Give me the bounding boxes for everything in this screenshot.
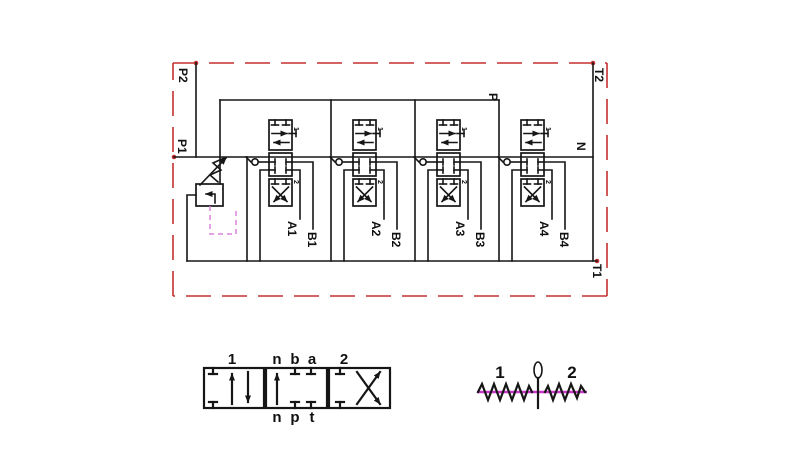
position-label-1: 1	[292, 127, 299, 131]
lever-label-1: 1	[495, 363, 504, 382]
port-label-a4: A4	[537, 221, 551, 237]
legend-label-port-n-top: n	[272, 351, 281, 368]
port-label-b2: B2	[389, 232, 403, 248]
legend-label-port-n-bottom: n	[272, 409, 281, 426]
port-label-t1: T1	[590, 264, 604, 278]
position-label-2: 2	[460, 180, 467, 184]
valve-spool-symbol	[353, 120, 380, 206]
legend-lever-spring-symbol: 1 2	[477, 362, 587, 408]
legend-label-pos1: 1	[228, 351, 236, 368]
check-valve-icon	[336, 159, 342, 165]
work-line-b	[544, 162, 565, 229]
port-label-t2: T2	[592, 68, 606, 82]
legend-label-port-b: b	[290, 351, 299, 368]
hydraulic-schematic-page: A1 B1 1 2 A2 B2 1 2 A3 B3 1 2	[0, 0, 800, 450]
valve-spool-symbol	[269, 120, 296, 206]
relief-valve-body	[196, 184, 223, 206]
legend-spool-symbol: 1 n b a 2 n p t	[204, 351, 390, 426]
relief-flow-arrow	[206, 194, 215, 203]
port-label-b4: B4	[557, 232, 571, 248]
position-label-1: 1	[376, 127, 383, 131]
work-line-a	[292, 170, 300, 219]
position-label-2: 2	[544, 180, 551, 184]
relief-return-line	[187, 195, 196, 261]
legend-label-port-a: a	[308, 351, 317, 368]
valve-section-1: A1 B1 1 2	[246, 120, 319, 261]
legend-label-pos2: 2	[340, 351, 348, 368]
valve-section-2: A2 B2 1 2	[330, 100, 403, 261]
pressure-relief-valve	[196, 158, 236, 234]
port-label-p1: P1	[175, 139, 189, 154]
schematic-canvas: A1 B1 1 2 A2 B2 1 2 A3 B3 1 2	[0, 0, 800, 450]
port-label-a1: A1	[285, 221, 299, 237]
tank-return-line	[344, 170, 353, 261]
relief-pilot-line	[210, 206, 236, 234]
work-line-b	[376, 162, 397, 229]
tank-return-line	[428, 170, 437, 261]
valve-section-4: A4 B4 1 2	[498, 100, 571, 261]
legend-label-port-p: p	[290, 409, 299, 426]
port-label-b3: B3	[473, 232, 487, 248]
check-valve-icon	[420, 159, 426, 165]
work-line-a	[544, 170, 552, 219]
relief-adjust-arrow-icon	[200, 158, 226, 185]
position-label-2: 2	[292, 180, 299, 184]
port-label-n: N	[574, 142, 588, 151]
lever-label-2: 2	[567, 363, 576, 382]
port-label-p2: P2	[176, 68, 190, 83]
port-label-p: P	[486, 93, 500, 101]
lever-knob-icon	[534, 362, 542, 378]
position-label-2: 2	[376, 180, 383, 184]
work-line-b	[460, 162, 481, 229]
port-label-b1: B1	[305, 232, 319, 248]
valve-section-3: A3 B3 1 2	[414, 100, 487, 261]
legend-label-port-t: t	[310, 409, 315, 426]
tank-return-line	[512, 170, 521, 261]
port-label-a3: A3	[453, 221, 467, 237]
position-label-1: 1	[460, 127, 467, 131]
check-valve-icon	[504, 159, 510, 165]
check-valve-icon	[252, 159, 258, 165]
valve-spool-symbol	[521, 120, 548, 206]
valve-spool-symbol	[437, 120, 464, 206]
position-label-1: 1	[544, 127, 551, 131]
work-line-b	[292, 162, 313, 229]
port-label-a2: A2	[369, 221, 383, 237]
work-line-a	[460, 170, 468, 219]
work-line-a	[376, 170, 384, 219]
tank-return-line	[260, 170, 269, 261]
